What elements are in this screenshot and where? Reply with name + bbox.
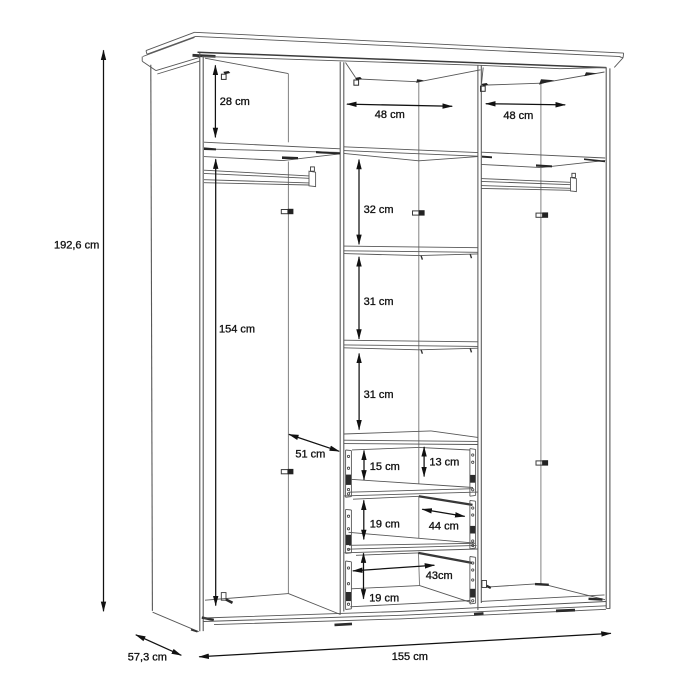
svg-text:51 cm: 51 cm [295, 448, 325, 460]
svg-text:48 cm: 48 cm [503, 110, 533, 122]
svg-text:31 cm: 31 cm [364, 389, 394, 401]
svg-text:192,6 cm: 192,6 cm [54, 239, 99, 251]
svg-text:154 cm: 154 cm [219, 323, 255, 335]
svg-text:28 cm: 28 cm [220, 96, 250, 108]
svg-text:43cm: 43cm [426, 570, 453, 582]
svg-text:19 cm: 19 cm [370, 519, 400, 531]
svg-text:32 cm: 32 cm [364, 204, 394, 216]
svg-text:155 cm: 155 cm [392, 651, 428, 663]
svg-text:15 cm: 15 cm [370, 461, 400, 473]
svg-text:57,3 cm: 57,3 cm [128, 651, 167, 663]
svg-text:13 cm: 13 cm [429, 456, 459, 468]
svg-text:19 cm: 19 cm [369, 592, 399, 604]
svg-text:44 cm: 44 cm [429, 521, 459, 533]
svg-text:48 cm: 48 cm [375, 109, 405, 121]
svg-text:31 cm: 31 cm [364, 296, 394, 308]
